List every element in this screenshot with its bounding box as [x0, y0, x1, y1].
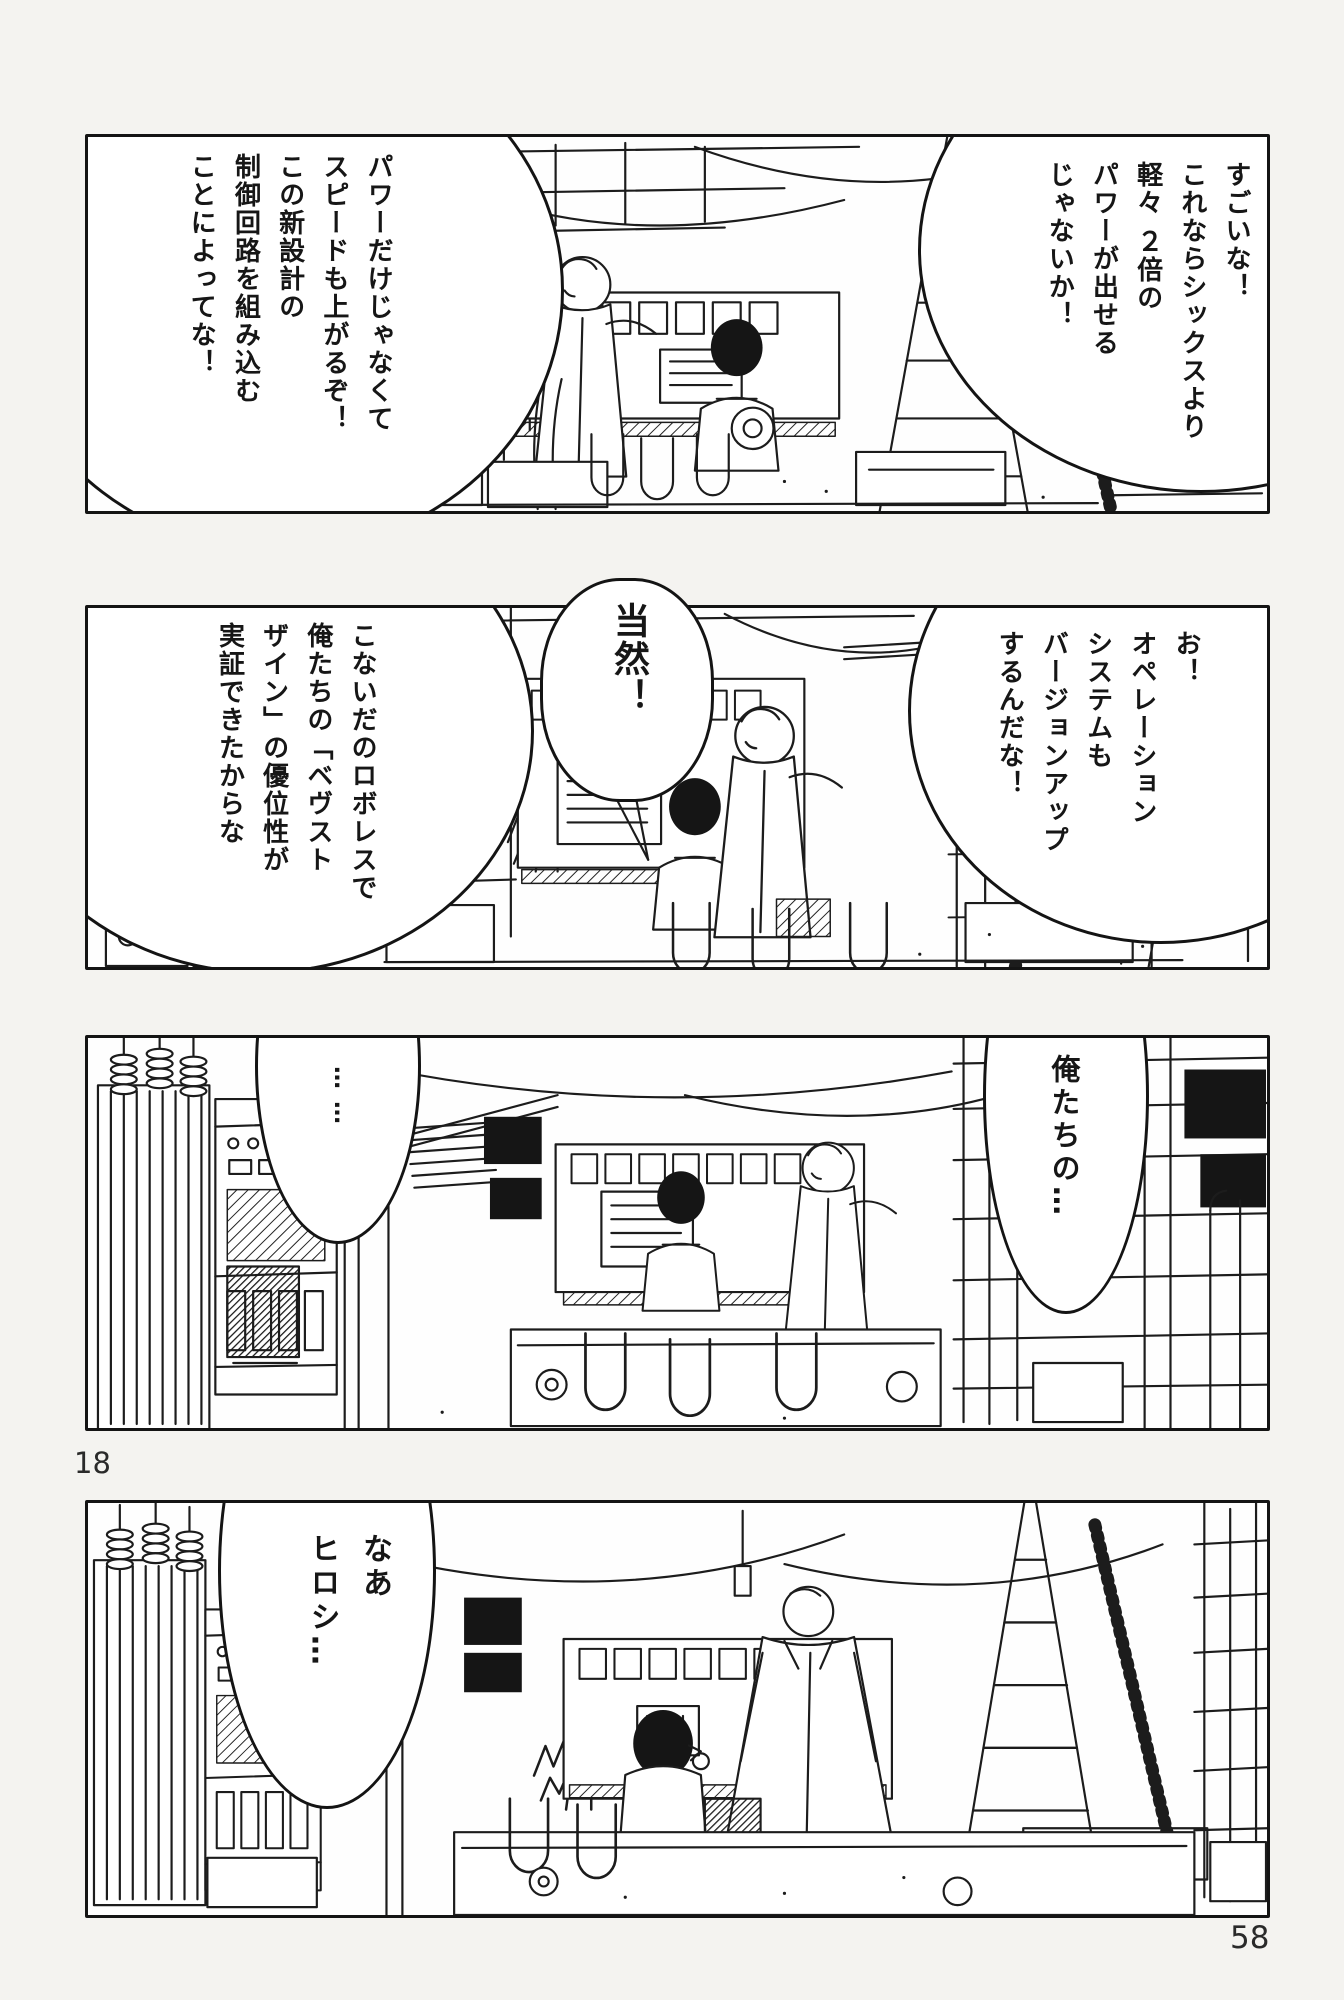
page-number-left: 18 [74, 1446, 111, 1480]
panel-4: なあ ヒロシ… [85, 1500, 1270, 1918]
cable [685, 1095, 983, 1116]
equipment-cabinet [98, 1085, 209, 1428]
manga-page: パワーだけじゃなくて スピードも上がるぞ！ この新設計の 制御回路を組み込む こ… [0, 0, 1344, 2000]
panel3-dialogue-right: 俺たちの… [1041, 1054, 1085, 1314]
dark-monitor [490, 1178, 542, 1219]
panel2-dialogue-left: こないだのロボレスで 俺たちの「ベヴスト ザイン」の優位性が 実証できたからな [116, 622, 384, 942]
chair-back [732, 408, 774, 449]
dark-monitor [464, 1653, 522, 1692]
insulator-coil [111, 1038, 137, 1094]
panel-3: …… 俺たちの… [85, 1035, 1270, 1431]
insulator-coil [143, 1503, 169, 1563]
page-number-right: 58 [1230, 1920, 1269, 1956]
dark-monitor [484, 1117, 542, 1164]
panel4-dialogue-left: なあ ヒロシ… [240, 1533, 400, 1823]
dark-monitor [1184, 1070, 1266, 1139]
insulator-coil [147, 1038, 173, 1088]
equipment-cabinet [94, 1560, 205, 1905]
dark-monitor [1200, 1154, 1266, 1207]
panel1-dialogue-right: すごいな！ これならシックスより 軽々 ２倍の パワーが出せる じゃないか！ [976, 161, 1258, 497]
panel2-dialogue-center: 当然！ [540, 602, 708, 782]
dark-monitor [464, 1598, 522, 1645]
machine-base [454, 1832, 1194, 1915]
crt-monitor [227, 1266, 299, 1357]
cable [342, 1060, 952, 1098]
panel-1: パワーだけじゃなくて スピードも上がるぞ！ この新設計の 制御回路を組み込む こ… [85, 134, 1270, 514]
panel2-dialogue-right: お！ オペレーション システムも バージョンアップ するんだな！ [946, 630, 1208, 930]
panel3-dialogue-left: …… [319, 1066, 355, 1256]
panel1-dialogue-left: パワーだけじゃなくて スピードも上がるぞ！ この新設計の 制御回路を組み込む こ… [110, 153, 400, 503]
insulator-coil [181, 1038, 207, 1096]
